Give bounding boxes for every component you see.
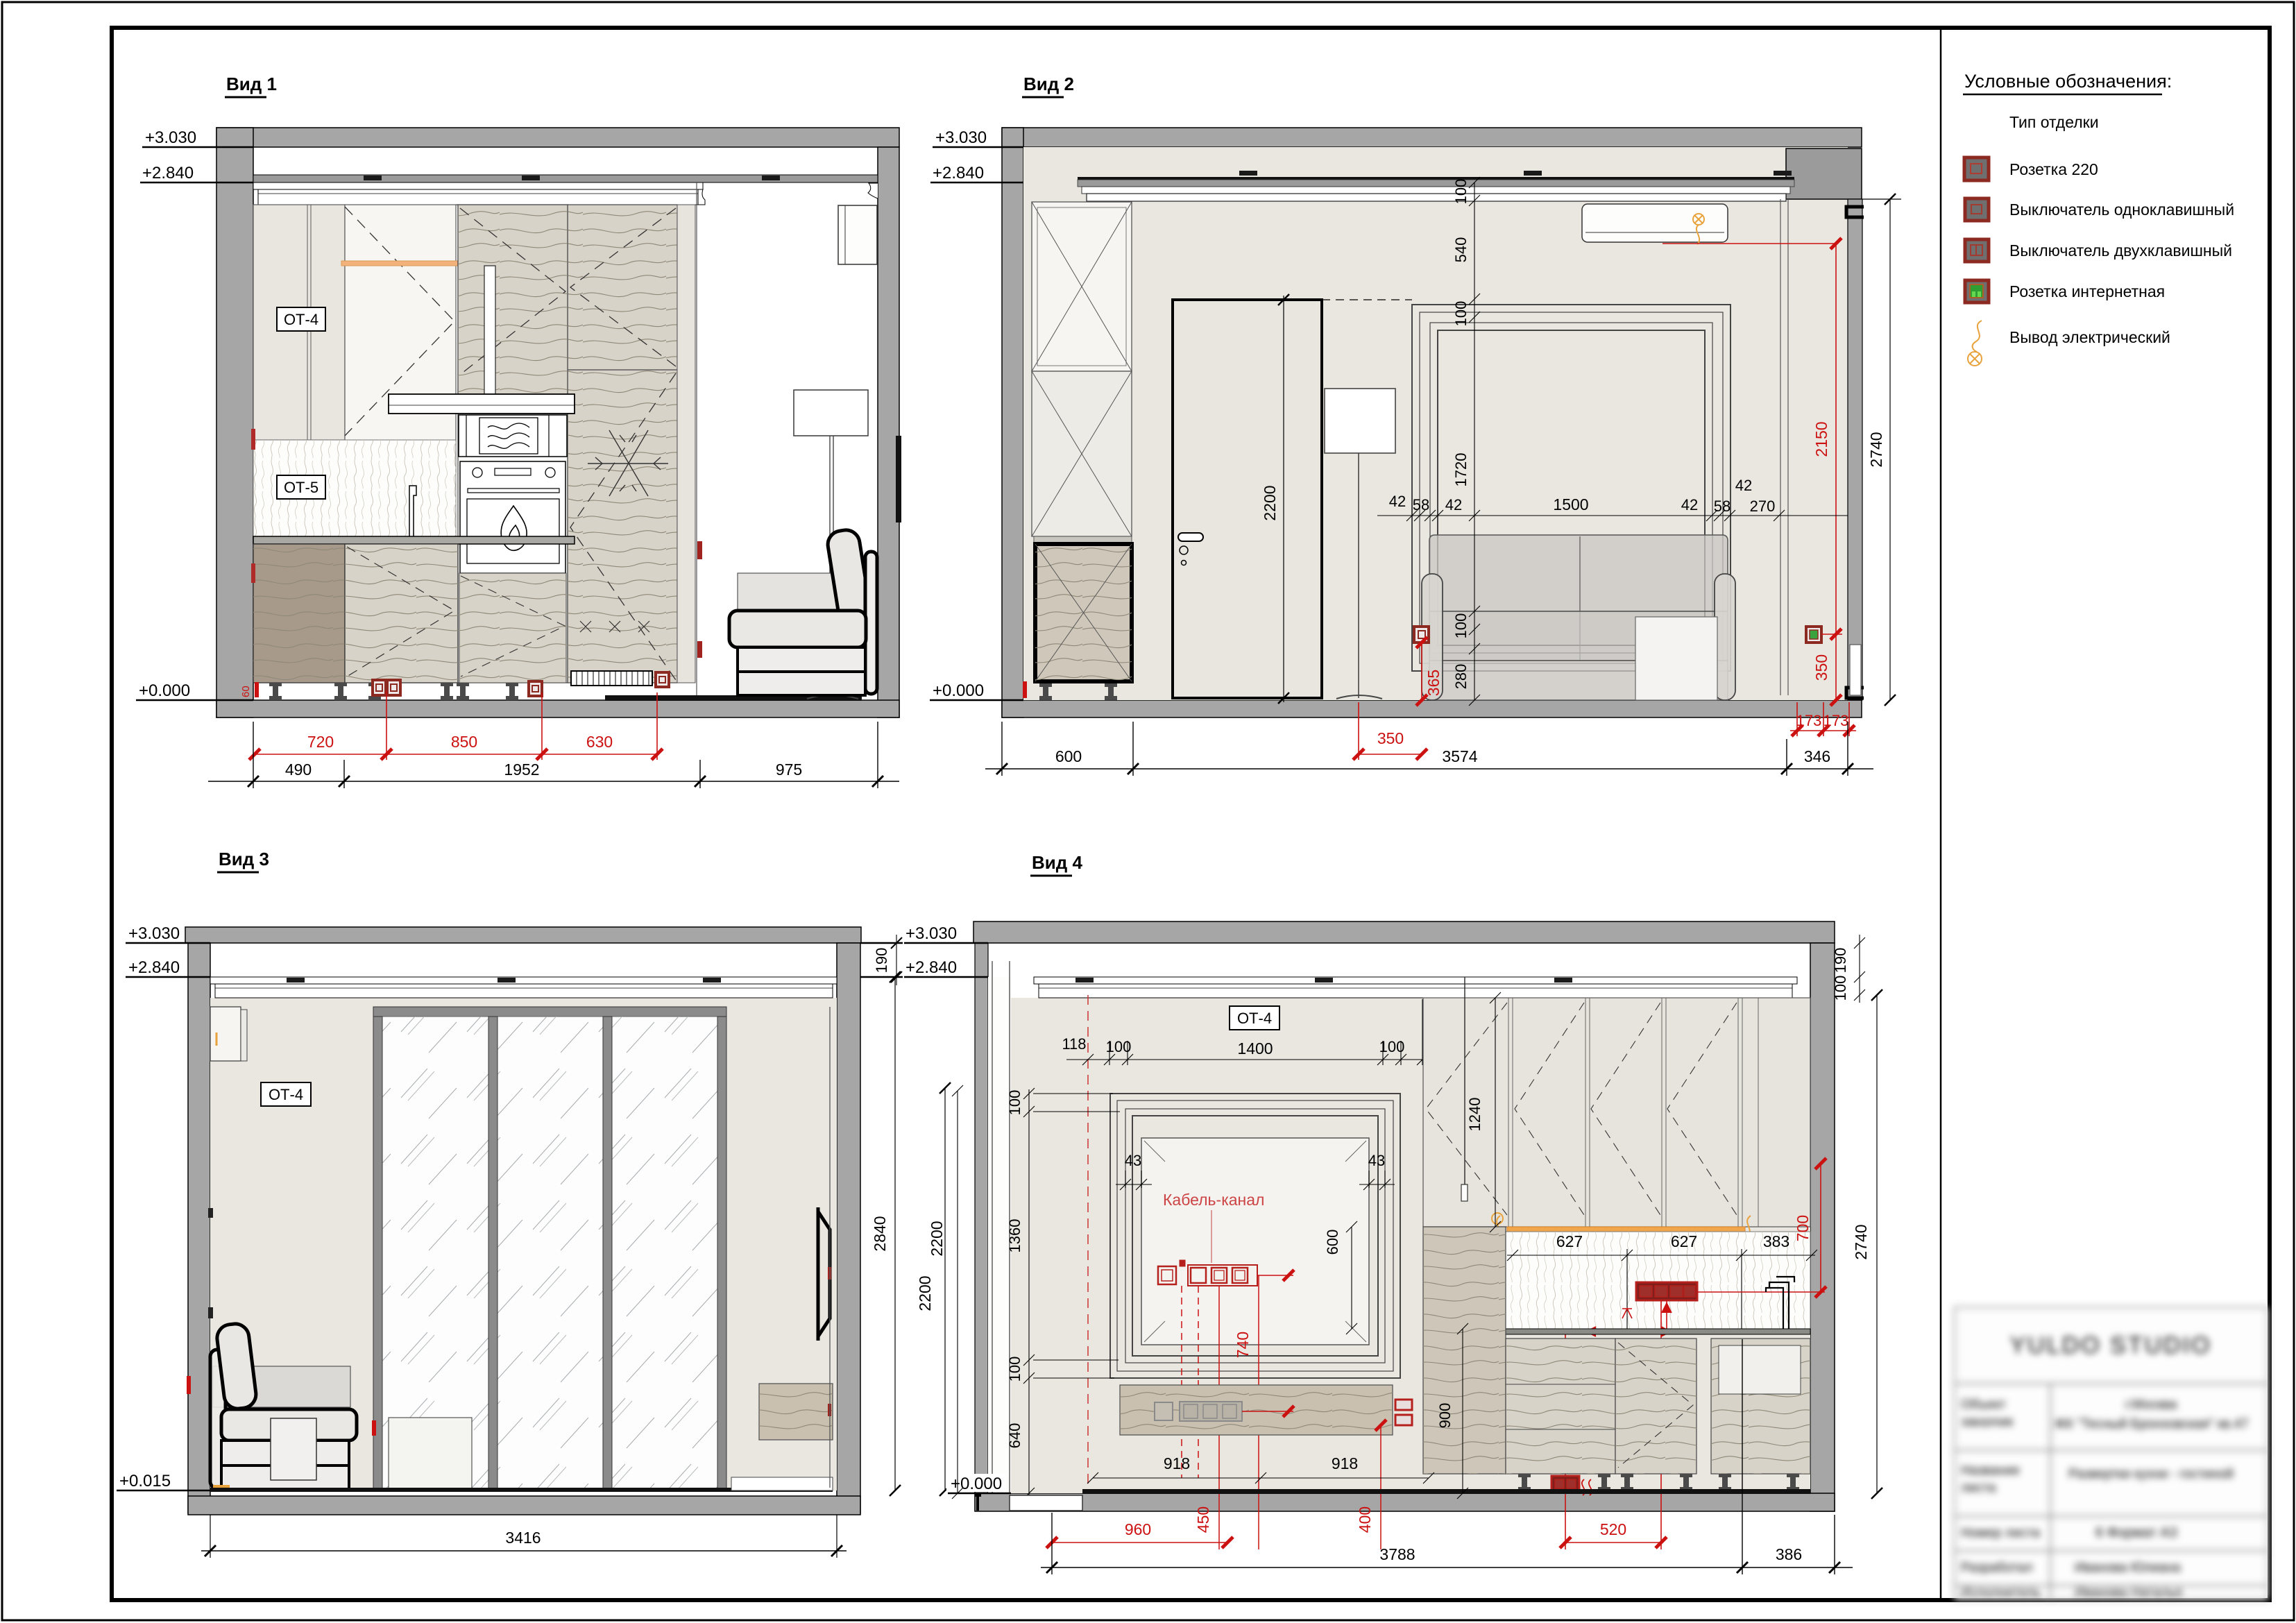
svg-text:1720: 1720 bbox=[1452, 453, 1470, 487]
svg-text:600: 600 bbox=[1324, 1230, 1341, 1255]
svg-text:190: 190 bbox=[873, 948, 890, 974]
svg-text:43: 43 bbox=[1125, 1152, 1141, 1169]
svg-text:ОТ-4: ОТ-4 bbox=[1237, 1010, 1272, 1027]
svg-text:58: 58 bbox=[1714, 498, 1730, 515]
svg-text:Вид 4: Вид 4 bbox=[1032, 852, 1082, 873]
svg-text:Вид 2: Вид 2 bbox=[1023, 74, 1074, 94]
svg-text:+0.015: +0.015 bbox=[119, 1472, 171, 1490]
svg-text:383: 383 bbox=[1763, 1232, 1789, 1250]
svg-text:350: 350 bbox=[1812, 654, 1830, 681]
svg-text:627: 627 bbox=[1556, 1232, 1583, 1250]
svg-text:270: 270 bbox=[1750, 498, 1776, 515]
svg-text:100: 100 bbox=[1006, 1357, 1023, 1382]
svg-text:3788: 3788 bbox=[1379, 1545, 1415, 1563]
svg-text:600: 600 bbox=[1055, 747, 1082, 765]
svg-text:2200: 2200 bbox=[928, 1221, 946, 1256]
svg-text:Номер листа: Номер листа bbox=[1961, 1526, 2040, 1540]
svg-text:+2.840: +2.840 bbox=[905, 958, 957, 977]
svg-text:листа: листа bbox=[1961, 1481, 1996, 1495]
svg-text:+3.030: +3.030 bbox=[128, 924, 180, 943]
svg-text:365: 365 bbox=[1425, 670, 1443, 696]
svg-text:100: 100 bbox=[1832, 976, 1849, 1001]
svg-text:Иванова Юлиана: Иванова Юлиана bbox=[2075, 1561, 2181, 1575]
svg-text:Развертки кухни - гостиной: Развертки кухни - гостиной bbox=[2068, 1467, 2234, 1481]
svg-text:850: 850 bbox=[451, 733, 477, 751]
svg-text:ОТ-4: ОТ-4 bbox=[269, 1086, 303, 1103]
svg-text:+2.840: +2.840 bbox=[128, 958, 180, 977]
svg-text:+2.840: +2.840 bbox=[933, 164, 984, 182]
svg-text:+0.000: +0.000 bbox=[933, 681, 984, 700]
svg-text:918: 918 bbox=[1332, 1454, 1358, 1472]
svg-text:+0.000: +0.000 bbox=[951, 1475, 1002, 1493]
svg-text:Кабель-канал: Кабель-канал bbox=[1163, 1191, 1264, 1209]
svg-text:ОТ-4: ОТ-4 bbox=[284, 311, 318, 328]
svg-text:Разработал: Разработал bbox=[1961, 1561, 2032, 1575]
svg-text:400: 400 bbox=[1356, 1506, 1374, 1533]
svg-text:Вывод электрический: Вывод электрический bbox=[2009, 328, 2170, 346]
svg-text:Исполнитель: Исполнитель bbox=[1961, 1585, 2041, 1599]
svg-text:1400: 1400 bbox=[1237, 1039, 1273, 1057]
svg-text:2740: 2740 bbox=[1867, 432, 1885, 467]
svg-text:ЖК "Тесный Бронховская" кв.47: ЖК "Тесный Бронховская" кв.47 bbox=[2053, 1417, 2248, 1431]
svg-text:2150: 2150 bbox=[1812, 421, 1830, 457]
svg-text:630: 630 bbox=[586, 733, 613, 751]
svg-text:+2.840: +2.840 bbox=[142, 164, 194, 182]
svg-text:386: 386 bbox=[1776, 1545, 1802, 1563]
svg-text:60: 60 bbox=[240, 686, 252, 697]
svg-text:100: 100 bbox=[1106, 1038, 1132, 1055]
svg-text:Тип отделки: Тип отделки bbox=[2009, 113, 2099, 131]
svg-text:2200: 2200 bbox=[916, 1275, 934, 1311]
svg-text:42: 42 bbox=[1735, 477, 1752, 494]
svg-text:100: 100 bbox=[1006, 1090, 1023, 1116]
svg-text:346: 346 bbox=[1804, 747, 1830, 765]
svg-text:42: 42 bbox=[1445, 496, 1462, 513]
svg-text:100: 100 bbox=[1452, 179, 1470, 205]
svg-text:640: 640 bbox=[1006, 1423, 1023, 1449]
svg-text:1240: 1240 bbox=[1466, 1098, 1483, 1132]
svg-text:Вид 1: Вид 1 bbox=[226, 74, 277, 94]
svg-text:58: 58 bbox=[1413, 496, 1429, 513]
svg-text:42: 42 bbox=[1389, 493, 1406, 510]
svg-text:960: 960 bbox=[1125, 1520, 1151, 1538]
svg-text:100: 100 bbox=[1452, 613, 1470, 639]
svg-text:+3.030: +3.030 bbox=[145, 128, 196, 147]
svg-text:заказчик: заказчик bbox=[1961, 1415, 2014, 1429]
svg-text:Условные обозначения:: Условные обозначения: bbox=[1964, 71, 2172, 92]
svg-text:900: 900 bbox=[1436, 1403, 1454, 1429]
svg-text:3416: 3416 bbox=[505, 1529, 541, 1547]
svg-text:43: 43 bbox=[1368, 1152, 1385, 1169]
svg-text:Выключатель двухклавишный: Выключатель двухклавишный bbox=[2009, 241, 2232, 260]
svg-text:450: 450 bbox=[1194, 1506, 1212, 1533]
svg-text:1952: 1952 bbox=[504, 760, 539, 779]
svg-text:Вид 3: Вид 3 bbox=[219, 849, 269, 869]
svg-text:190: 190 bbox=[1832, 948, 1849, 974]
svg-text:6 Формат А3: 6 Формат А3 bbox=[2095, 1525, 2177, 1540]
svg-text:г.Москва: г.Москва bbox=[2125, 1397, 2177, 1412]
svg-text:975: 975 bbox=[776, 760, 802, 779]
svg-text:350: 350 bbox=[1377, 729, 1404, 747]
svg-text:280: 280 bbox=[1452, 664, 1470, 690]
svg-text:+0.000: +0.000 bbox=[139, 681, 190, 700]
svg-text:1360: 1360 bbox=[1006, 1219, 1023, 1253]
svg-text:740: 740 bbox=[1234, 1332, 1252, 1358]
svg-text:118: 118 bbox=[1062, 1035, 1086, 1053]
svg-text:2200: 2200 bbox=[1261, 485, 1279, 520]
svg-text:490: 490 bbox=[285, 760, 312, 779]
svg-text:Объект: Объект bbox=[1961, 1397, 2006, 1412]
svg-text:Выключатель одноклавишный: Выключатель одноклавишный bbox=[2009, 201, 2234, 219]
svg-text:Розетка 220: Розетка 220 bbox=[2009, 160, 2098, 178]
svg-text:540: 540 bbox=[1452, 237, 1470, 263]
svg-text:Розетка интернетная: Розетка интернетная bbox=[2009, 282, 2165, 300]
svg-text:100: 100 bbox=[1452, 301, 1470, 327]
svg-text:2740: 2740 bbox=[1852, 1224, 1870, 1259]
svg-text:100: 100 bbox=[1379, 1038, 1405, 1055]
svg-text:+3.030: +3.030 bbox=[905, 924, 957, 943]
svg-text:520: 520 bbox=[1600, 1520, 1626, 1538]
svg-text:3574: 3574 bbox=[1442, 747, 1477, 765]
svg-text:2840: 2840 bbox=[871, 1216, 889, 1251]
svg-text:+3.030: +3.030 bbox=[935, 128, 987, 147]
svg-text:YULDO STUDIO: YULDO STUDIO bbox=[2009, 1332, 2211, 1359]
svg-text:720: 720 bbox=[307, 733, 334, 751]
svg-text:173: 173 bbox=[1823, 712, 1849, 729]
svg-text:1500: 1500 bbox=[1553, 495, 1588, 513]
svg-text:Иванова Наталья: Иванова Наталья bbox=[2075, 1585, 2182, 1599]
svg-text:700: 700 bbox=[1794, 1215, 1812, 1241]
svg-text:918: 918 bbox=[1164, 1454, 1190, 1472]
svg-text:ОТ-5: ОТ-5 bbox=[284, 479, 318, 496]
svg-text:627: 627 bbox=[1671, 1232, 1697, 1250]
svg-text:173: 173 bbox=[1796, 712, 1822, 729]
svg-text:Название: Название bbox=[1961, 1463, 2020, 1478]
svg-text:42: 42 bbox=[1681, 496, 1698, 513]
